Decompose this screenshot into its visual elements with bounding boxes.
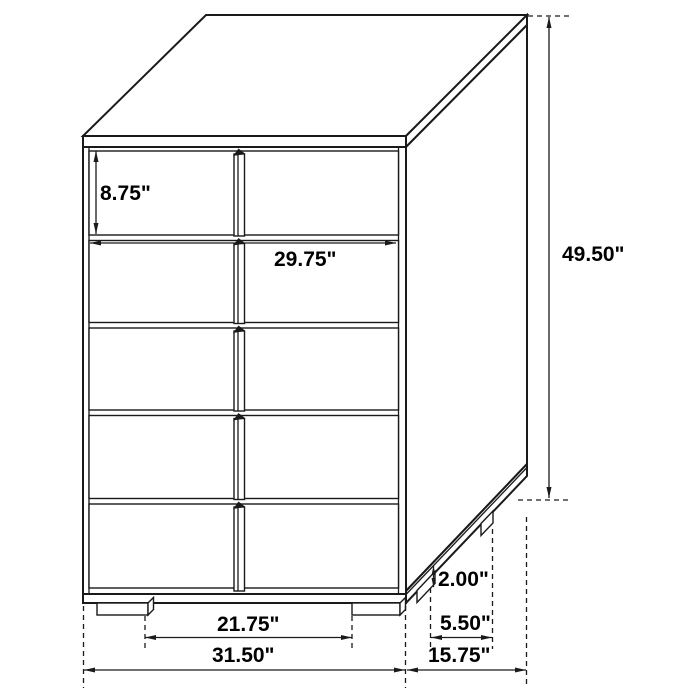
dim-overall-width: 31.50": [84, 644, 405, 673]
overall-width-label: 31.50": [212, 644, 275, 667]
drawer-width-label: 29.75": [274, 248, 337, 271]
dim-overall-height: 49.50": [547, 17, 625, 498]
foot-spacing-width-label: 21.75": [217, 613, 280, 636]
drawer-handle-4: [233, 413, 246, 500]
chest: [83, 15, 527, 615]
drawer-handle-1: [233, 149, 246, 237]
overall-depth-label: 15.75": [428, 644, 491, 667]
dim-foot-spacing-width: 21.75": [145, 613, 352, 640]
drawer-handle-3: [233, 326, 246, 412]
drawer-handle-5: [233, 502, 246, 592]
dim-foot-inset-depth: 5.50": [431, 612, 492, 640]
dimension-diagram: 8.75" 29.75" 49.50" 2.00" 21.75": [0, 0, 700, 700]
foot-height-label: 2.00": [438, 568, 489, 591]
foot-inset-depth-label: 5.50": [440, 612, 491, 635]
chest-dimension-drawing: 8.75" 29.75" 49.50" 2.00" 21.75": [0, 0, 700, 700]
top-drawer-height-label: 8.75": [100, 182, 151, 205]
dim-overall-depth: 15.75": [407, 644, 526, 673]
drawer-handle-2: [233, 238, 246, 324]
front-left-foot: [97, 603, 148, 615]
drawer-handles: [233, 149, 246, 592]
front-right-foot: [352, 603, 400, 615]
overall-height-label: 49.50": [562, 243, 625, 266]
dim-foot-height: 2.00": [432, 566, 489, 591]
